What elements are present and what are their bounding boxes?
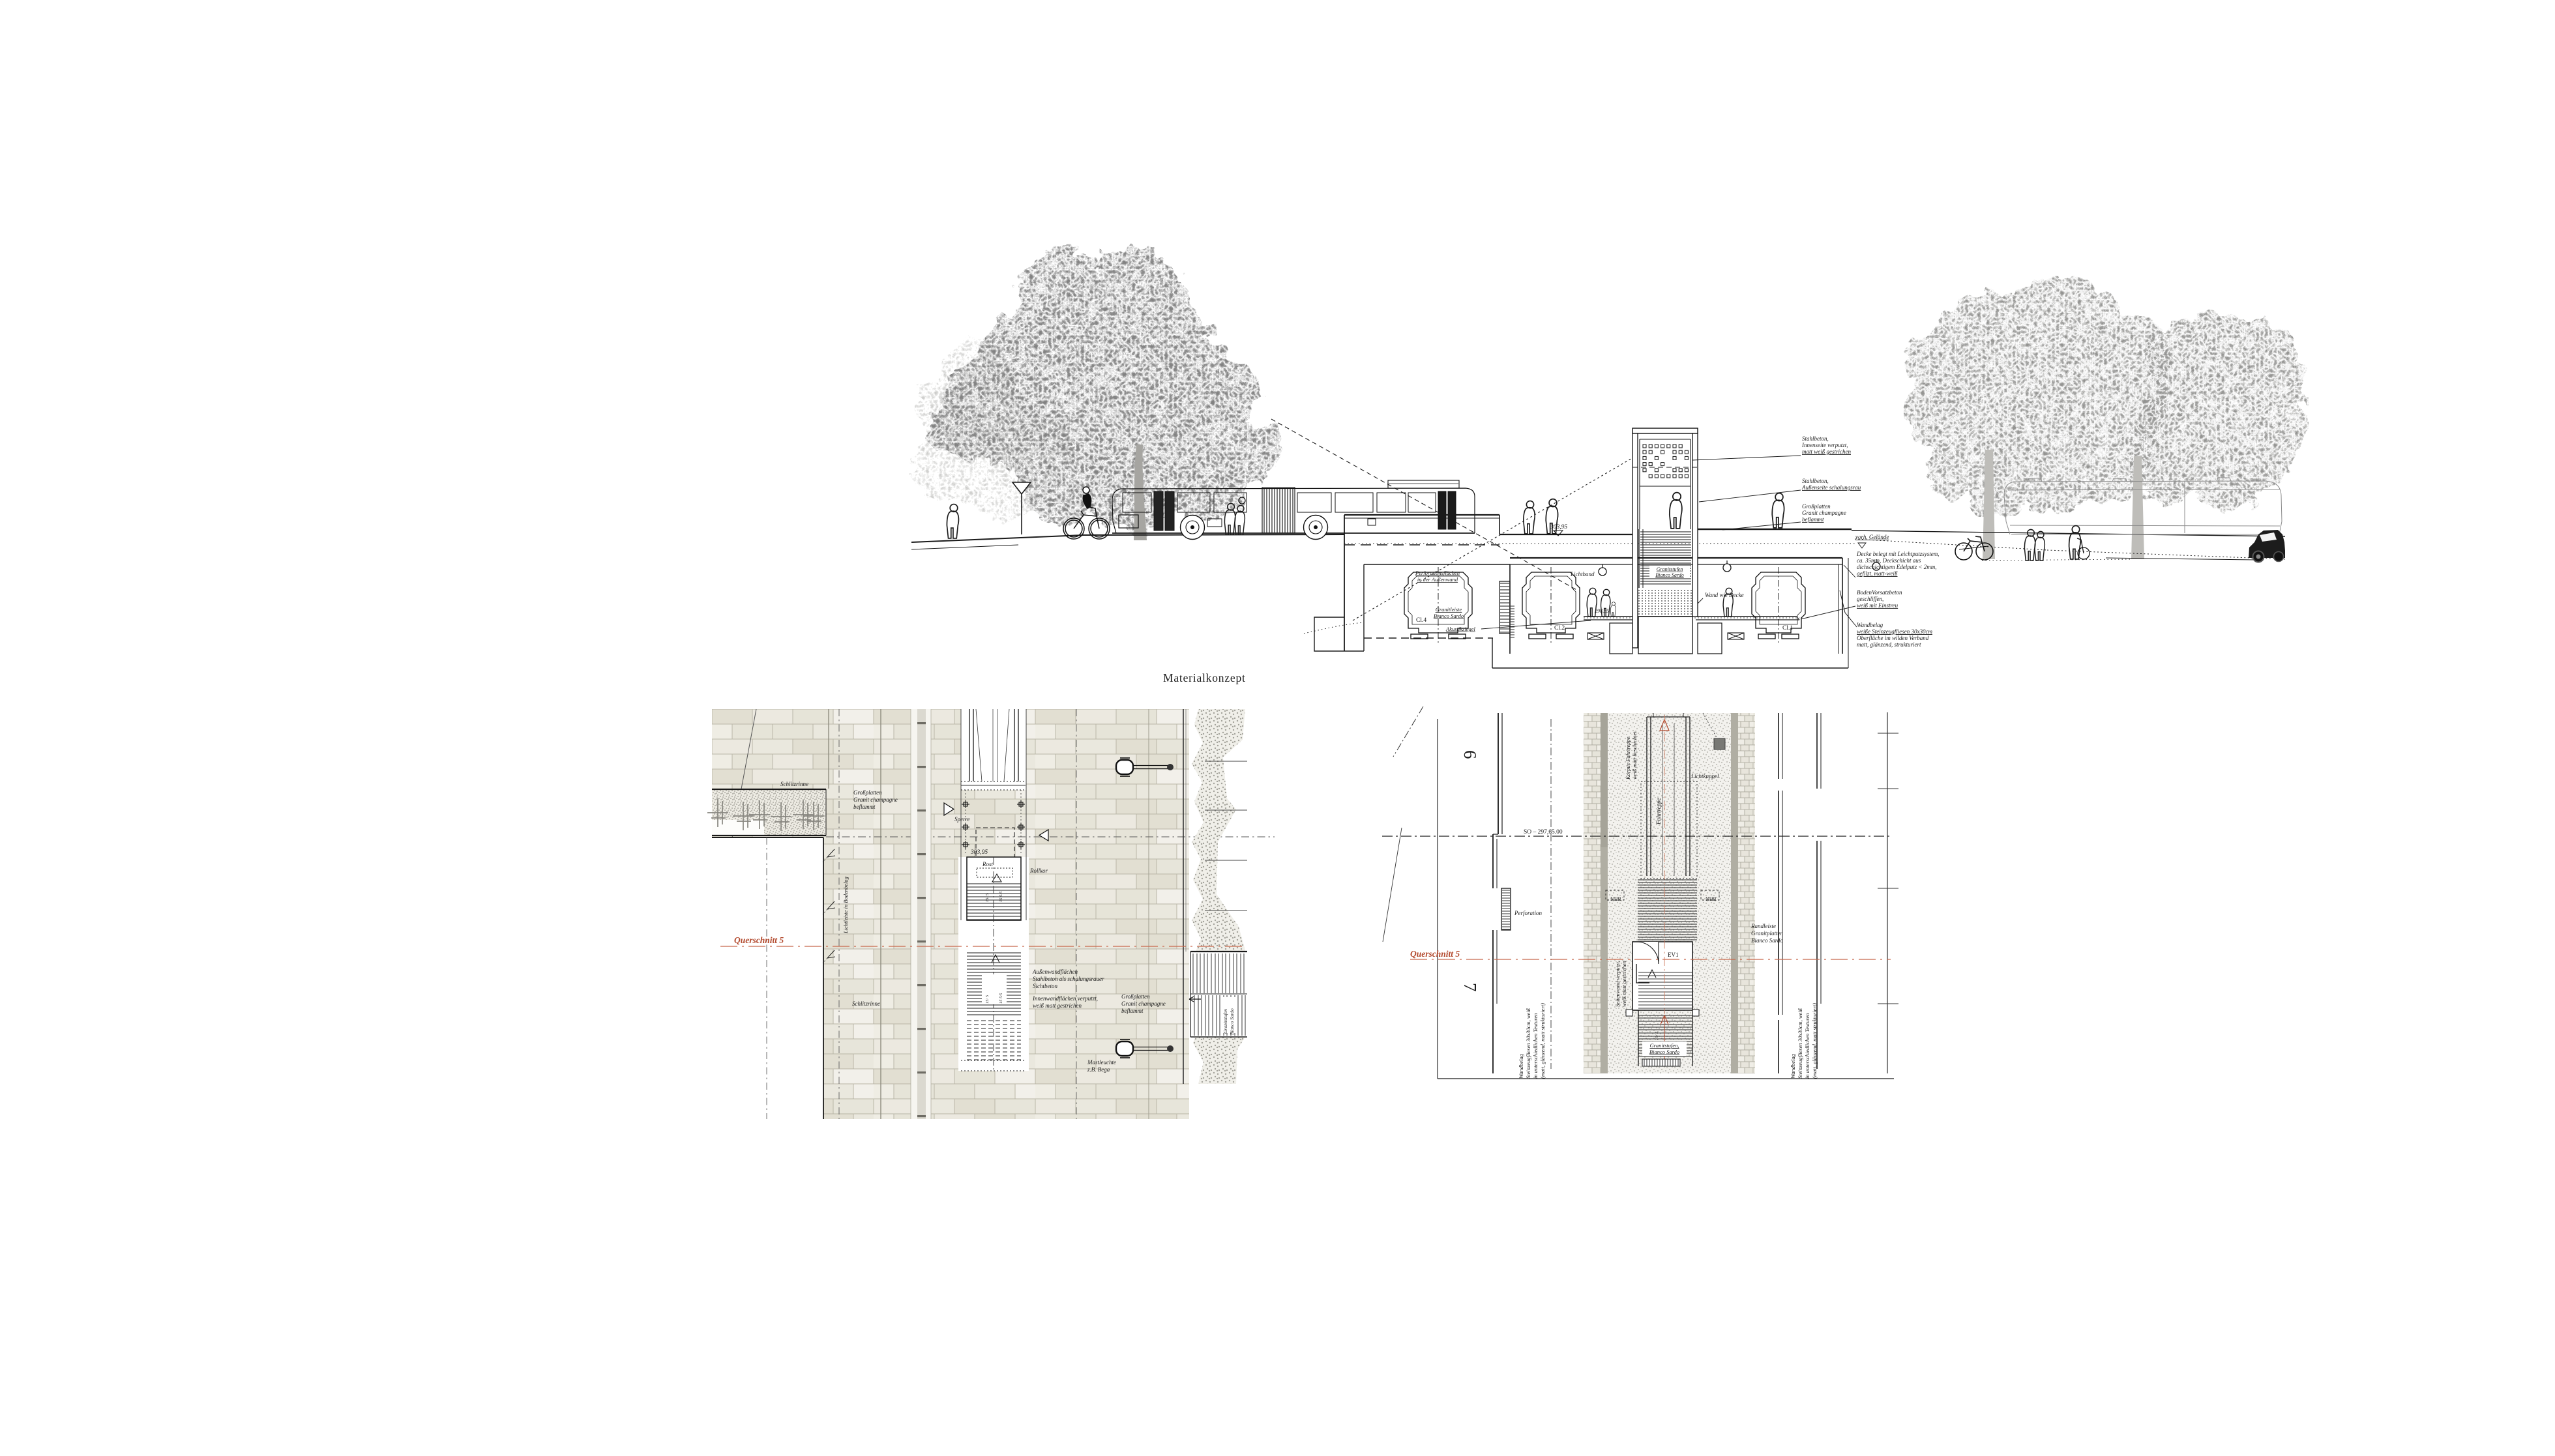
svg-text:Bianco Sardo: Bianco Sardo	[1655, 572, 1683, 578]
svg-text:matt weiß gestrichen: matt weiß gestrichen	[1802, 448, 1851, 455]
svg-text:Perforation: Perforation	[1514, 910, 1542, 916]
svg-text:Stahlbeton,: Stahlbeton,	[1802, 435, 1829, 442]
svg-text:7: 7	[1460, 983, 1480, 992]
svg-text:weiß matt gestrichen: weiß matt gestrichen	[1621, 961, 1627, 1007]
svg-text:Oberfläche im wilden Verband: Oberfläche im wilden Verband	[1857, 635, 1929, 641]
svg-text:Lichtkuppel: Lichtkuppel	[1691, 773, 1719, 779]
svg-text:ca. 35mm, Deckschicht aus: ca. 35mm, Deckschicht aus	[1857, 557, 1921, 564]
svg-text:6: 6	[1460, 750, 1480, 759]
svg-text:Fahrtreppe: Fahrtreppe	[1655, 798, 1662, 825]
svg-text:Querschnitt 5: Querschnitt 5	[1410, 949, 1460, 959]
svg-text:Schlitzrinne: Schlitzrinne	[852, 1000, 880, 1007]
svg-text:Großplatten: Großplatten	[1121, 993, 1150, 1000]
svg-text:weiß mit Einstreu: weiß mit Einstreu	[1857, 602, 1898, 609]
svg-text:Cl.2: Cl.2	[1554, 625, 1565, 632]
svg-text:Wand wie Decke: Wand wie Decke	[1705, 592, 1744, 598]
svg-text:Großplatten: Großplatten	[1802, 503, 1831, 510]
svg-text:Granit champagne: Granit champagne	[853, 796, 898, 803]
svg-text:EV1: EV1	[1668, 952, 1679, 958]
svg-text:NHR: NHR	[1610, 896, 1622, 902]
svg-text:Wandbelag: Wandbelag	[1790, 1054, 1796, 1079]
svg-text:15/ 5: 15/ 5	[985, 995, 990, 1004]
svg-text:NHR: NHR	[1706, 896, 1717, 902]
svg-text:dichschichtigem Edelputz < 2mm: dichschichtigem Edelputz < 2mm,	[1857, 564, 1937, 570]
svg-text:vorh. Gelände: vorh. Gelände	[1855, 534, 1889, 540]
svg-text:BodenVorsatzbeton: BodenVorsatzbeton	[1857, 589, 1902, 596]
svg-text:Sperre: Sperre	[954, 816, 970, 823]
svg-text:beflammt: beflammt	[853, 804, 876, 810]
svg-text:Granit champagne: Granit champagne	[1121, 1000, 1166, 1007]
svg-text:SO – 297,65.00: SO – 297,65.00	[1524, 829, 1563, 836]
svg-text:Bianco Sardo: Bianco Sardo	[1649, 1049, 1679, 1055]
svg-text:in unterschiedlichen Texturen: in unterschiedlichen Texturen	[1804, 1013, 1810, 1079]
svg-text:Bianco Sardo: Bianco Sardo	[1751, 937, 1783, 944]
svg-text:Granitstufen,: Granitstufen,	[1649, 1042, 1679, 1049]
svg-text:Großplatten: Großplatten	[853, 789, 882, 796]
svg-text:Sichtbeton: Sichtbeton	[1033, 983, 1057, 989]
svg-text:Steinzeugfliesen 30x30cm, weiß: Steinzeugfliesen 30x30cm, weiß	[1797, 1008, 1803, 1079]
svg-text:Rost: Rost	[982, 861, 994, 867]
svg-text:Wandbelag: Wandbelag	[1518, 1054, 1524, 1079]
svg-text:matt, glänzend, strukturiert: matt, glänzend, strukturiert	[1857, 641, 1921, 648]
svg-text:Stahlbeton als schalungsrauer: Stahlbeton als schalungsrauer	[1033, 976, 1104, 982]
svg-text:Außenwandflächen: Außenwandflächen	[1032, 968, 1078, 975]
svg-text:(matt, glänzend, matt struktur: (matt, glänzend, matt strukturiert)	[1539, 1003, 1546, 1079]
svg-text:Materialkonzept: Materialkonzept	[1163, 671, 1246, 684]
svg-text:303,95: 303,95	[1550, 524, 1567, 531]
svg-text:Bianco Sardo: Bianco Sardo	[1229, 1008, 1235, 1035]
svg-text:Bianco Sardo: Bianco Sardo	[1434, 613, 1464, 619]
svg-text:Wandbelag: Wandbelag	[1857, 622, 1883, 628]
svg-text:Granitstufen: Granitstufen	[1222, 1009, 1228, 1034]
svg-text:Cl.4: Cl.4	[1416, 617, 1426, 624]
svg-text:(matt, glänzend, matt struktur: (matt, glänzend, matt strukturiert)	[1811, 1003, 1818, 1079]
svg-text:Steinzeugfliesen 30x30cm, weiß: Steinzeugfliesen 30x30cm, weiß	[1525, 1008, 1531, 1079]
svg-text:in der Außenwand: in der Außenwand	[1417, 576, 1458, 583]
svg-text:Randleiste: Randleiste	[1750, 923, 1776, 929]
svg-text:z.B. Bega: z.B. Bega	[1087, 1066, 1110, 1073]
svg-text:Innenseite verputzt,: Innenseite verputzt,	[1801, 442, 1848, 448]
svg-text:Lichtleiste in Bodenbelag: Lichtleiste in Bodenbelag	[842, 877, 849, 934]
svg-text:Granitstufen: Granitstufen	[1657, 566, 1683, 572]
svg-text:Außenseite schalungsrau: Außenseite schalungsrau	[1801, 484, 1861, 491]
svg-text:Decke belegt mit Leichtputzsy: Decke belegt mit Leichtputzsystem,	[1856, 551, 1939, 557]
svg-text:15 5/5: 15 5/5	[999, 993, 1003, 1004]
svg-text:Korpus Fahrtreppe: Korpus Fahrtreppe	[1625, 736, 1631, 780]
svg-text:15 5/5: 15 5/5	[999, 891, 1003, 902]
svg-text:beflammt: beflammt	[1121, 1008, 1144, 1014]
svg-text:beflammt: beflammt	[1802, 516, 1824, 523]
svg-text:Granit champagne: Granit champagne	[1802, 510, 1846, 516]
svg-text:weiße Steinzeugfliesen 30x30cm: weiße Steinzeugfliesen 30x30cm	[1857, 628, 1932, 635]
svg-text:Mastleuchte: Mastleuchte	[1087, 1059, 1116, 1066]
svg-text:geschliffen,: geschliffen,	[1857, 596, 1883, 602]
svg-text:Seitenwand verputzt,: Seitenwand verputzt,	[1614, 961, 1621, 1007]
svg-text:weiß matt beschichtet: weiß matt beschichtet	[1631, 731, 1638, 779]
svg-text:Rollkor: Rollkor	[1029, 867, 1048, 874]
svg-text:298,65: 298,65	[1595, 608, 1609, 614]
svg-text:Innenwandflächen verputzt,: Innenwandflächen verputzt,	[1032, 995, 1098, 1002]
svg-text:Schlitzrinne: Schlitzrinne	[780, 781, 808, 787]
svg-text:Granitleiste: Granitleiste	[1436, 606, 1462, 613]
svg-text:Granitplatten: Granitplatten	[1751, 930, 1783, 937]
svg-text:15/ 5: 15/ 5	[1655, 1031, 1659, 1040]
svg-text:Akustikziegel: Akustikziegel	[1445, 626, 1475, 632]
svg-text:Lichtband: Lichtband	[1570, 571, 1595, 577]
svg-text:Cl.1: Cl.1	[1782, 625, 1793, 632]
svg-text:Querschnitt 5: Querschnitt 5	[734, 935, 784, 945]
svg-text:in unterschiedlichen Texturen: in unterschiedlichen Texturen	[1532, 1013, 1539, 1079]
svg-text:Perforationsflächen: Perforationsflächen	[1415, 570, 1460, 576]
svg-text:gefilzt, matt-weiß: gefilzt, matt-weiß	[1857, 570, 1898, 577]
svg-text:weiß matt gestrichen: weiß matt gestrichen	[1033, 1002, 1082, 1009]
svg-text:303,95: 303,95	[970, 849, 988, 856]
svg-text:15/ 5: 15/ 5	[985, 893, 990, 902]
svg-text:Stahlbeton,: Stahlbeton,	[1802, 478, 1829, 484]
